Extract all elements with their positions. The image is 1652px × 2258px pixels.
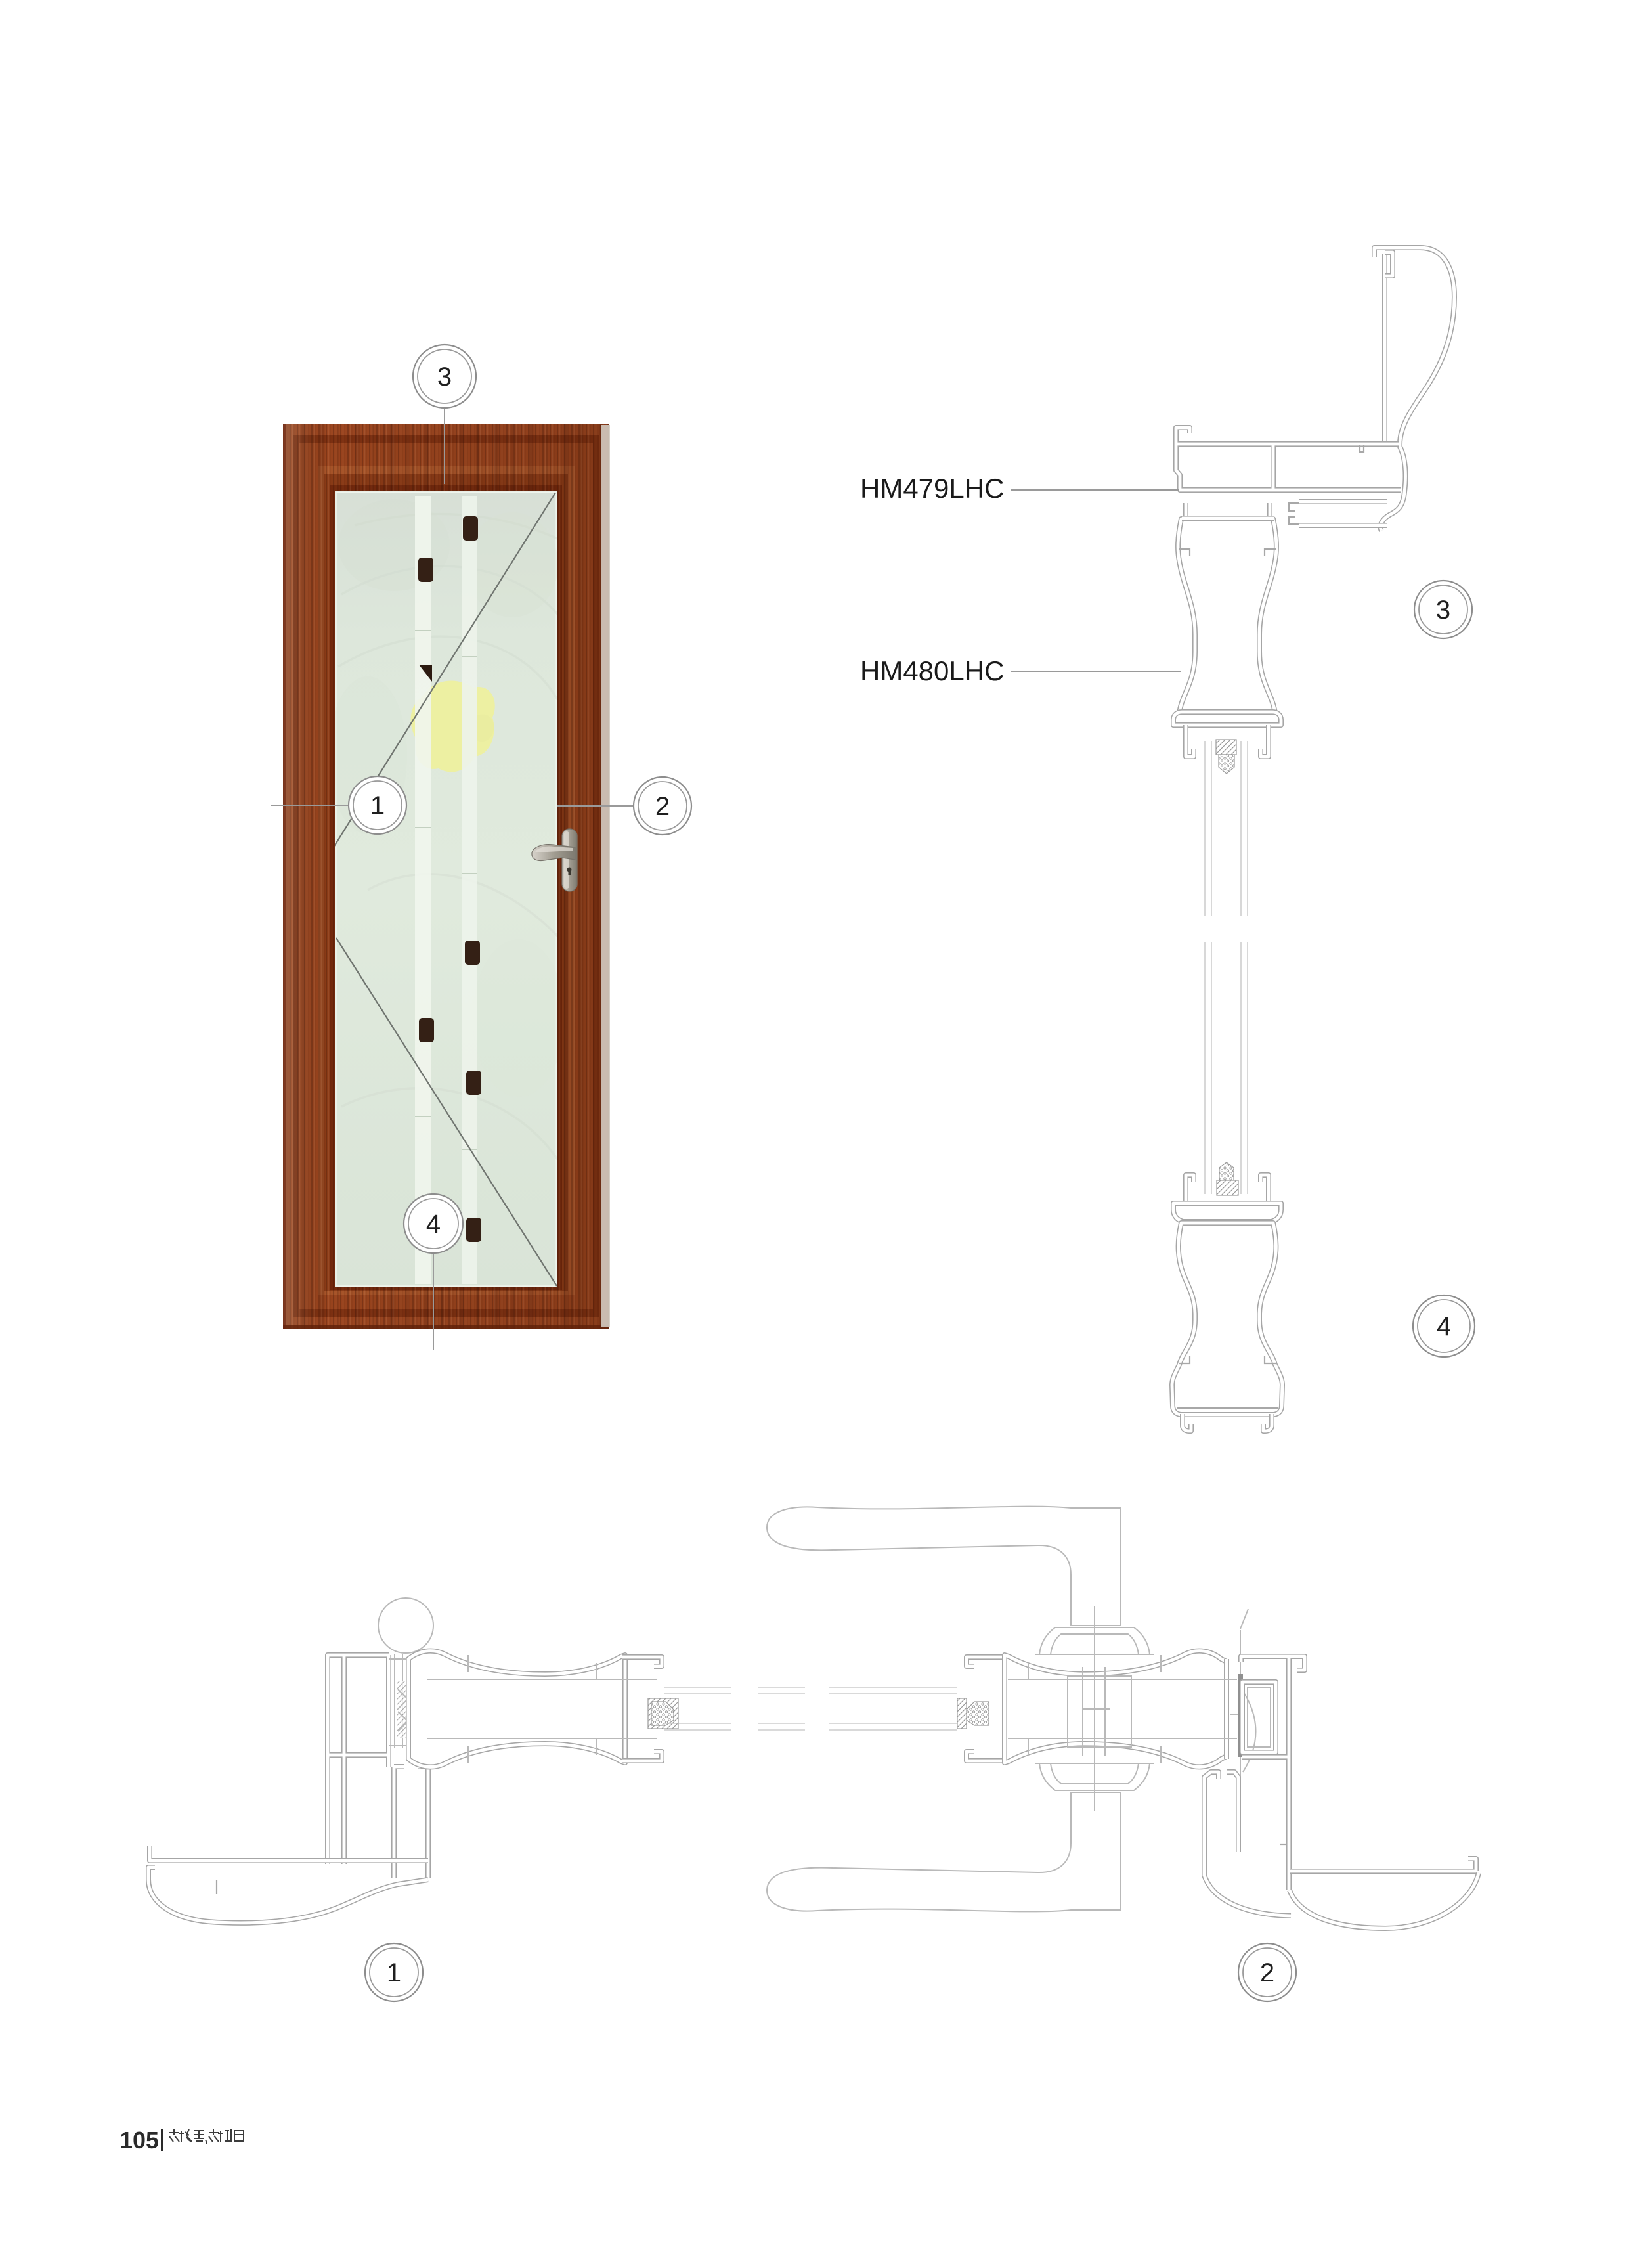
- svg-text:HM480LHC: HM480LHC: [860, 655, 1004, 686]
- svg-text:2: 2: [1260, 1959, 1274, 1987]
- svg-text:4: 4: [426, 1210, 441, 1239]
- svg-text:HM479LHC: HM479LHC: [860, 473, 1004, 504]
- svg-text:1: 1: [370, 791, 385, 820]
- svg-text:2: 2: [655, 792, 670, 821]
- svg-text:105: 105: [120, 2127, 159, 2154]
- svg-text:4: 4: [1437, 1312, 1451, 1341]
- svg-text:3: 3: [1436, 596, 1450, 625]
- svg-text:3: 3: [437, 363, 452, 391]
- svg-text:1: 1: [387, 1959, 401, 1987]
